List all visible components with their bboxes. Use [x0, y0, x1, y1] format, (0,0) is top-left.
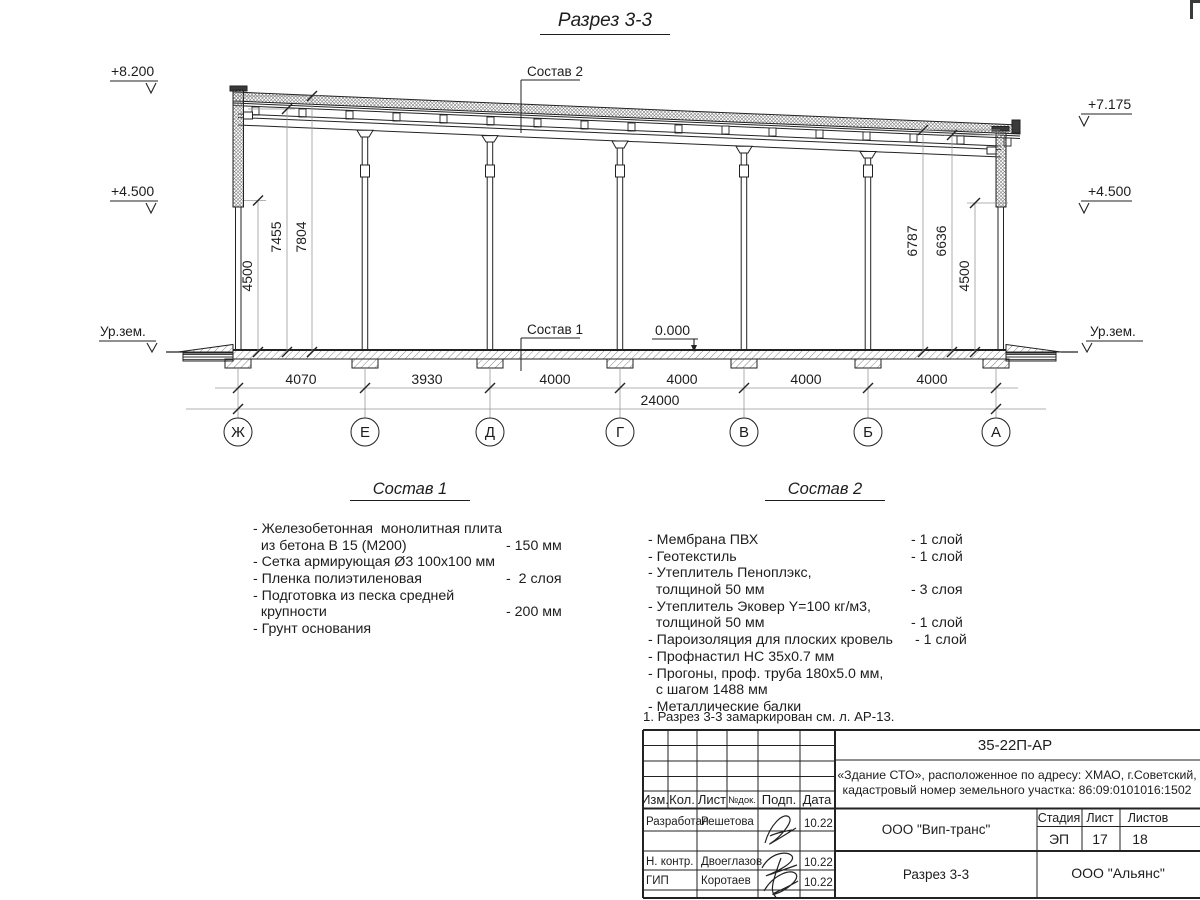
list-item: - Утеплитель Эковер Y=100 кг/м3, [648, 599, 871, 615]
dim-bay-3: 4000 [539, 371, 570, 387]
list-value: - 1 слой [911, 549, 963, 566]
tb-name-0: Решетова [701, 816, 754, 828]
tb-role-2: ГИП [646, 875, 669, 887]
list-item: - Пароизоляция для плоских кровель [648, 632, 893, 648]
axis-label: А [991, 424, 1001, 441]
comp2-heading: Состав 2 [765, 480, 885, 501]
comp1-heading: Состав 1 [350, 480, 470, 501]
axis-label: Е [360, 424, 370, 441]
tb-firm: ООО "Альянс" [1071, 865, 1165, 881]
tb-col-podp: Подп. [762, 792, 797, 807]
list-item: из бетона В 15 (М200) [253, 538, 407, 554]
tb-date-1: 10.22 [804, 857, 833, 869]
tb-date-0: 10.22 [804, 818, 833, 830]
elevation-left-top: +8.200 [111, 63, 154, 79]
signature-0 [765, 816, 796, 844]
leader-sostav1-label: Состав 1 [527, 322, 583, 337]
axis-bubble-v: В [730, 418, 758, 446]
axis-label: Г [616, 424, 624, 441]
roof-fascia [1012, 120, 1020, 133]
dim-right-4500: 4500 [956, 260, 972, 291]
elevation-right-top: +7.175 [1088, 96, 1131, 112]
note-text: 1. Разрез 3-3 замаркирован см. л. АР-13. [643, 709, 894, 724]
list-value: - 150 мм [506, 538, 562, 555]
list-item: - Пленка полиэтиленовая [253, 571, 422, 587]
comp2-list: - Мембрана ПВХ- 1 слой - Геотекстиль- 1 … [648, 532, 993, 716]
tb-sheet-label: Лист [1086, 811, 1113, 825]
dim-bay-6: 4000 [916, 371, 947, 387]
tb-sheets-label: Листов [1128, 811, 1169, 825]
tb-sheet-title: Разрез 3-3 [903, 867, 969, 882]
tb-col-list: Лист [698, 792, 726, 807]
wall-right [992, 127, 1009, 351]
tb-col-ndok: №док. [728, 795, 756, 806]
sheet-frame-corner [1190, 0, 1200, 3]
axis-bubble-e: Е [351, 418, 379, 446]
tb-object-line1: «Здание СТО», расположенное по адресу: Х… [837, 768, 1196, 782]
list-item: - Сетка армирующая Ø3 100х100 мм [253, 554, 495, 570]
axis-label: Ж [231, 424, 245, 441]
tb-role-0: Разработал [646, 816, 709, 828]
list-item: крупности [253, 604, 327, 620]
list-value: - 2 слоя [506, 571, 562, 588]
elevation-right-mid: +4.500 [1088, 183, 1131, 199]
comp1-list: - Железобетонная монолитная плита из бет… [253, 521, 583, 638]
list-item: толщиной 50 мм [648, 615, 765, 631]
tb-role-1: Н. контр. [646, 856, 693, 868]
leader-sostav2-label: Состав 2 [527, 64, 583, 79]
dim-left-4500: 4500 [239, 260, 255, 291]
ground-label-right: Ур.зем. [1090, 324, 1136, 339]
floor-slab [233, 350, 1006, 359]
interior-columns [357, 130, 876, 350]
apron-left-bedding [183, 353, 233, 361]
list-item: - Профнастил НС 35х0.7 мм [648, 649, 834, 665]
list-value: - 1 слой [911, 532, 963, 549]
axis-bubble-zh: Ж [224, 418, 252, 446]
list-item: - Утеплитель Пеноплэкс, [648, 565, 812, 581]
axis-label: В [739, 424, 749, 441]
tb-stage-value: ЭП [1049, 831, 1069, 847]
list-item: - Мембрана ПВХ [648, 532, 758, 548]
foundation-pads [225, 359, 1009, 368]
list-value: - 1 слой [911, 615, 963, 632]
tb-date-2: 10.22 [804, 877, 833, 889]
tb-sheets-value: 18 [1132, 831, 1148, 847]
tb-name-1: Двоеглазов [701, 856, 762, 868]
dim-bay-4: 4000 [666, 371, 697, 387]
dim-bay-1: 4070 [285, 371, 316, 387]
tb-col-izm: Изм. [641, 792, 669, 807]
list-item: - Геотекстиль [648, 549, 737, 565]
tb-name-2: Коротаев [701, 875, 751, 887]
list-item: - Прогоны, проф. труба 180х5.0 мм, [648, 666, 883, 682]
sheet-frame-corner [1190, 0, 1193, 19]
axis-bubble-d: Д [476, 418, 504, 446]
wall-left-panel [233, 90, 244, 207]
bottom-dimensions: 4070 3930 4000 4000 4000 4000 24000 [186, 368, 1046, 418]
list-value: - 1 слой [911, 632, 967, 649]
dim-right-6787: 6787 [904, 225, 920, 256]
elevation-zero: 0.000 [655, 322, 690, 338]
list-item: - Грунт основания [253, 621, 371, 637]
dim-left-7455: 7455 [268, 221, 284, 252]
list-item: с шагом 1488 мм [648, 682, 768, 698]
wall-right-panel [996, 133, 1006, 207]
axis-bubbles: Ж Е Д Г В Б А [224, 418, 1010, 446]
tb-col-kol: Кол. [669, 792, 695, 807]
tb-object-line2: кадастровый номер земельного участка: 86… [842, 783, 1191, 797]
apron-right-bedding [1006, 353, 1056, 361]
dim-total: 24000 [641, 392, 680, 408]
column-splice-plates [361, 165, 873, 177]
roof-assembly [233, 92, 1020, 157]
axis-bubble-b: Б [854, 418, 882, 446]
list-item: - Подготовка из песка средней [253, 588, 454, 604]
section-drawing: +8.200 +4.500 Ур.зем. +7.175 +4.500 Ур.з… [0, 0, 1200, 470]
roof-deck-line [233, 103, 1020, 136]
ground-label-left: Ур.зем. [100, 324, 146, 339]
beam-bracket-left [244, 112, 253, 119]
column-right [998, 207, 1004, 350]
title-block: Изм. Кол. Лист №док. Подп. Дата Разработ… [640, 726, 1200, 900]
beam-bracket-right [987, 147, 996, 154]
drawing-sheet: { "title": "Разрез 3-3", "drawing": { "l… [0, 0, 1200, 900]
axis-bubble-a: А [982, 418, 1010, 446]
list-value: - 200 мм [506, 604, 562, 621]
tb-col-data: Дата [803, 792, 833, 807]
dim-bay-2: 3930 [411, 371, 442, 387]
apron-right [1006, 345, 1061, 353]
tb-sheet-value: 17 [1092, 831, 1108, 847]
axis-bubble-g: Г [606, 418, 634, 446]
list-item: - Железобетонная монолитная плита [253, 521, 502, 537]
tb-stage-label: Стадия [1038, 811, 1081, 825]
dim-right-6636: 6636 [933, 225, 949, 256]
dim-left-7804: 7804 [293, 221, 309, 252]
dim-bay-5: 4000 [790, 371, 821, 387]
list-item: толщиной 50 мм [648, 582, 765, 598]
tb-doc-number: 35-22П-АР [978, 737, 1052, 754]
elevation-left-mid: +4.500 [111, 183, 154, 199]
axis-label: Б [863, 424, 873, 441]
list-value: - 3 слоя [911, 582, 963, 599]
axis-label: Д [485, 424, 495, 441]
apron-left [178, 345, 233, 353]
tb-company: ООО "Вип-транс" [882, 822, 991, 837]
